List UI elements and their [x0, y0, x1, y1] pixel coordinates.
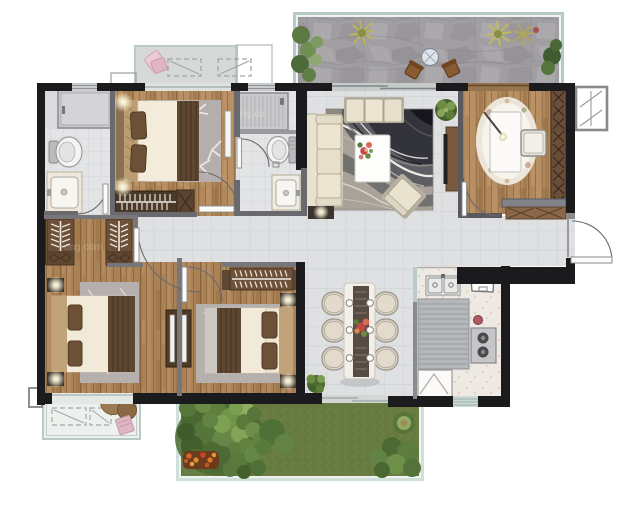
svg-text:ng.co: ng.co [240, 109, 265, 120]
svg-text:eng.com: eng.com [64, 242, 102, 253]
